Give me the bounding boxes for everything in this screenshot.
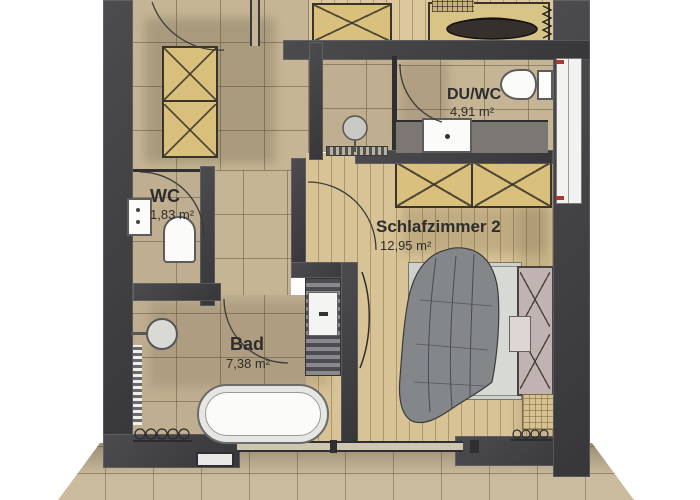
hallway-floor bbox=[133, 0, 309, 174]
room-area-schlafzimmer2: 12,95 m² bbox=[380, 238, 431, 253]
handle-icon bbox=[319, 312, 328, 316]
room-area-bad: 7,38 m² bbox=[226, 356, 270, 371]
bathtub bbox=[197, 384, 329, 444]
duwc-toilet bbox=[500, 69, 537, 100]
bad-washbasin bbox=[146, 318, 178, 350]
bad-east-wall bbox=[341, 262, 358, 445]
wall-radiator bbox=[133, 345, 142, 425]
bathtub-inner bbox=[205, 392, 321, 436]
shower-drain-channel bbox=[326, 146, 388, 156]
shower-floor bbox=[323, 56, 392, 152]
wardrobe-door-icon bbox=[164, 104, 216, 156]
hall-wall-stub bbox=[250, 0, 260, 46]
checkered-rug bbox=[432, 0, 474, 12]
washbasin-mount bbox=[131, 332, 147, 335]
room-label-schlafzimmer2: Schlafzimmer 2 bbox=[376, 217, 501, 237]
room-label-duwc: DU/WC bbox=[447, 86, 501, 104]
duwc-cistern bbox=[537, 70, 553, 100]
upper-wardrobe bbox=[312, 3, 392, 43]
window-mark-icon bbox=[556, 196, 564, 200]
top-wall bbox=[283, 40, 590, 60]
window-mark-icon bbox=[556, 60, 564, 64]
wardrobe-door-icon bbox=[164, 48, 216, 102]
wc-bottom-wall bbox=[133, 283, 221, 301]
room-area-duwc: 4,91 m² bbox=[450, 104, 494, 119]
wc-sink bbox=[127, 198, 152, 236]
duwc-counter bbox=[396, 120, 548, 153]
floor-plan: WC 1,83 m² DU/WC 4,91 m² Schlafzimmer 2 … bbox=[0, 0, 700, 500]
radiator-panel bbox=[308, 292, 338, 336]
wc-toilet bbox=[163, 216, 196, 263]
window-mullion bbox=[330, 440, 337, 453]
right-window bbox=[556, 58, 582, 204]
basement-window bbox=[196, 452, 234, 467]
duwc-sink bbox=[422, 118, 472, 153]
bedroom-west-wall bbox=[291, 158, 306, 273]
wardrobe-door-icon bbox=[397, 163, 473, 206]
window-mullion bbox=[470, 440, 479, 453]
faucet-icon bbox=[445, 134, 450, 139]
headboard-tray bbox=[509, 316, 531, 352]
room-area-wc: 1,83 m² bbox=[150, 207, 194, 222]
faucet-icon bbox=[136, 208, 140, 212]
wardrobe-door-icon bbox=[475, 163, 550, 206]
hall-wardrobe bbox=[162, 46, 218, 158]
drain-icon bbox=[136, 220, 140, 224]
room-label-bad: Bad bbox=[230, 334, 264, 355]
bedroom-wardrobe bbox=[395, 161, 552, 208]
shower-left-wall bbox=[309, 42, 323, 160]
room-label-wc: WC bbox=[150, 186, 180, 207]
